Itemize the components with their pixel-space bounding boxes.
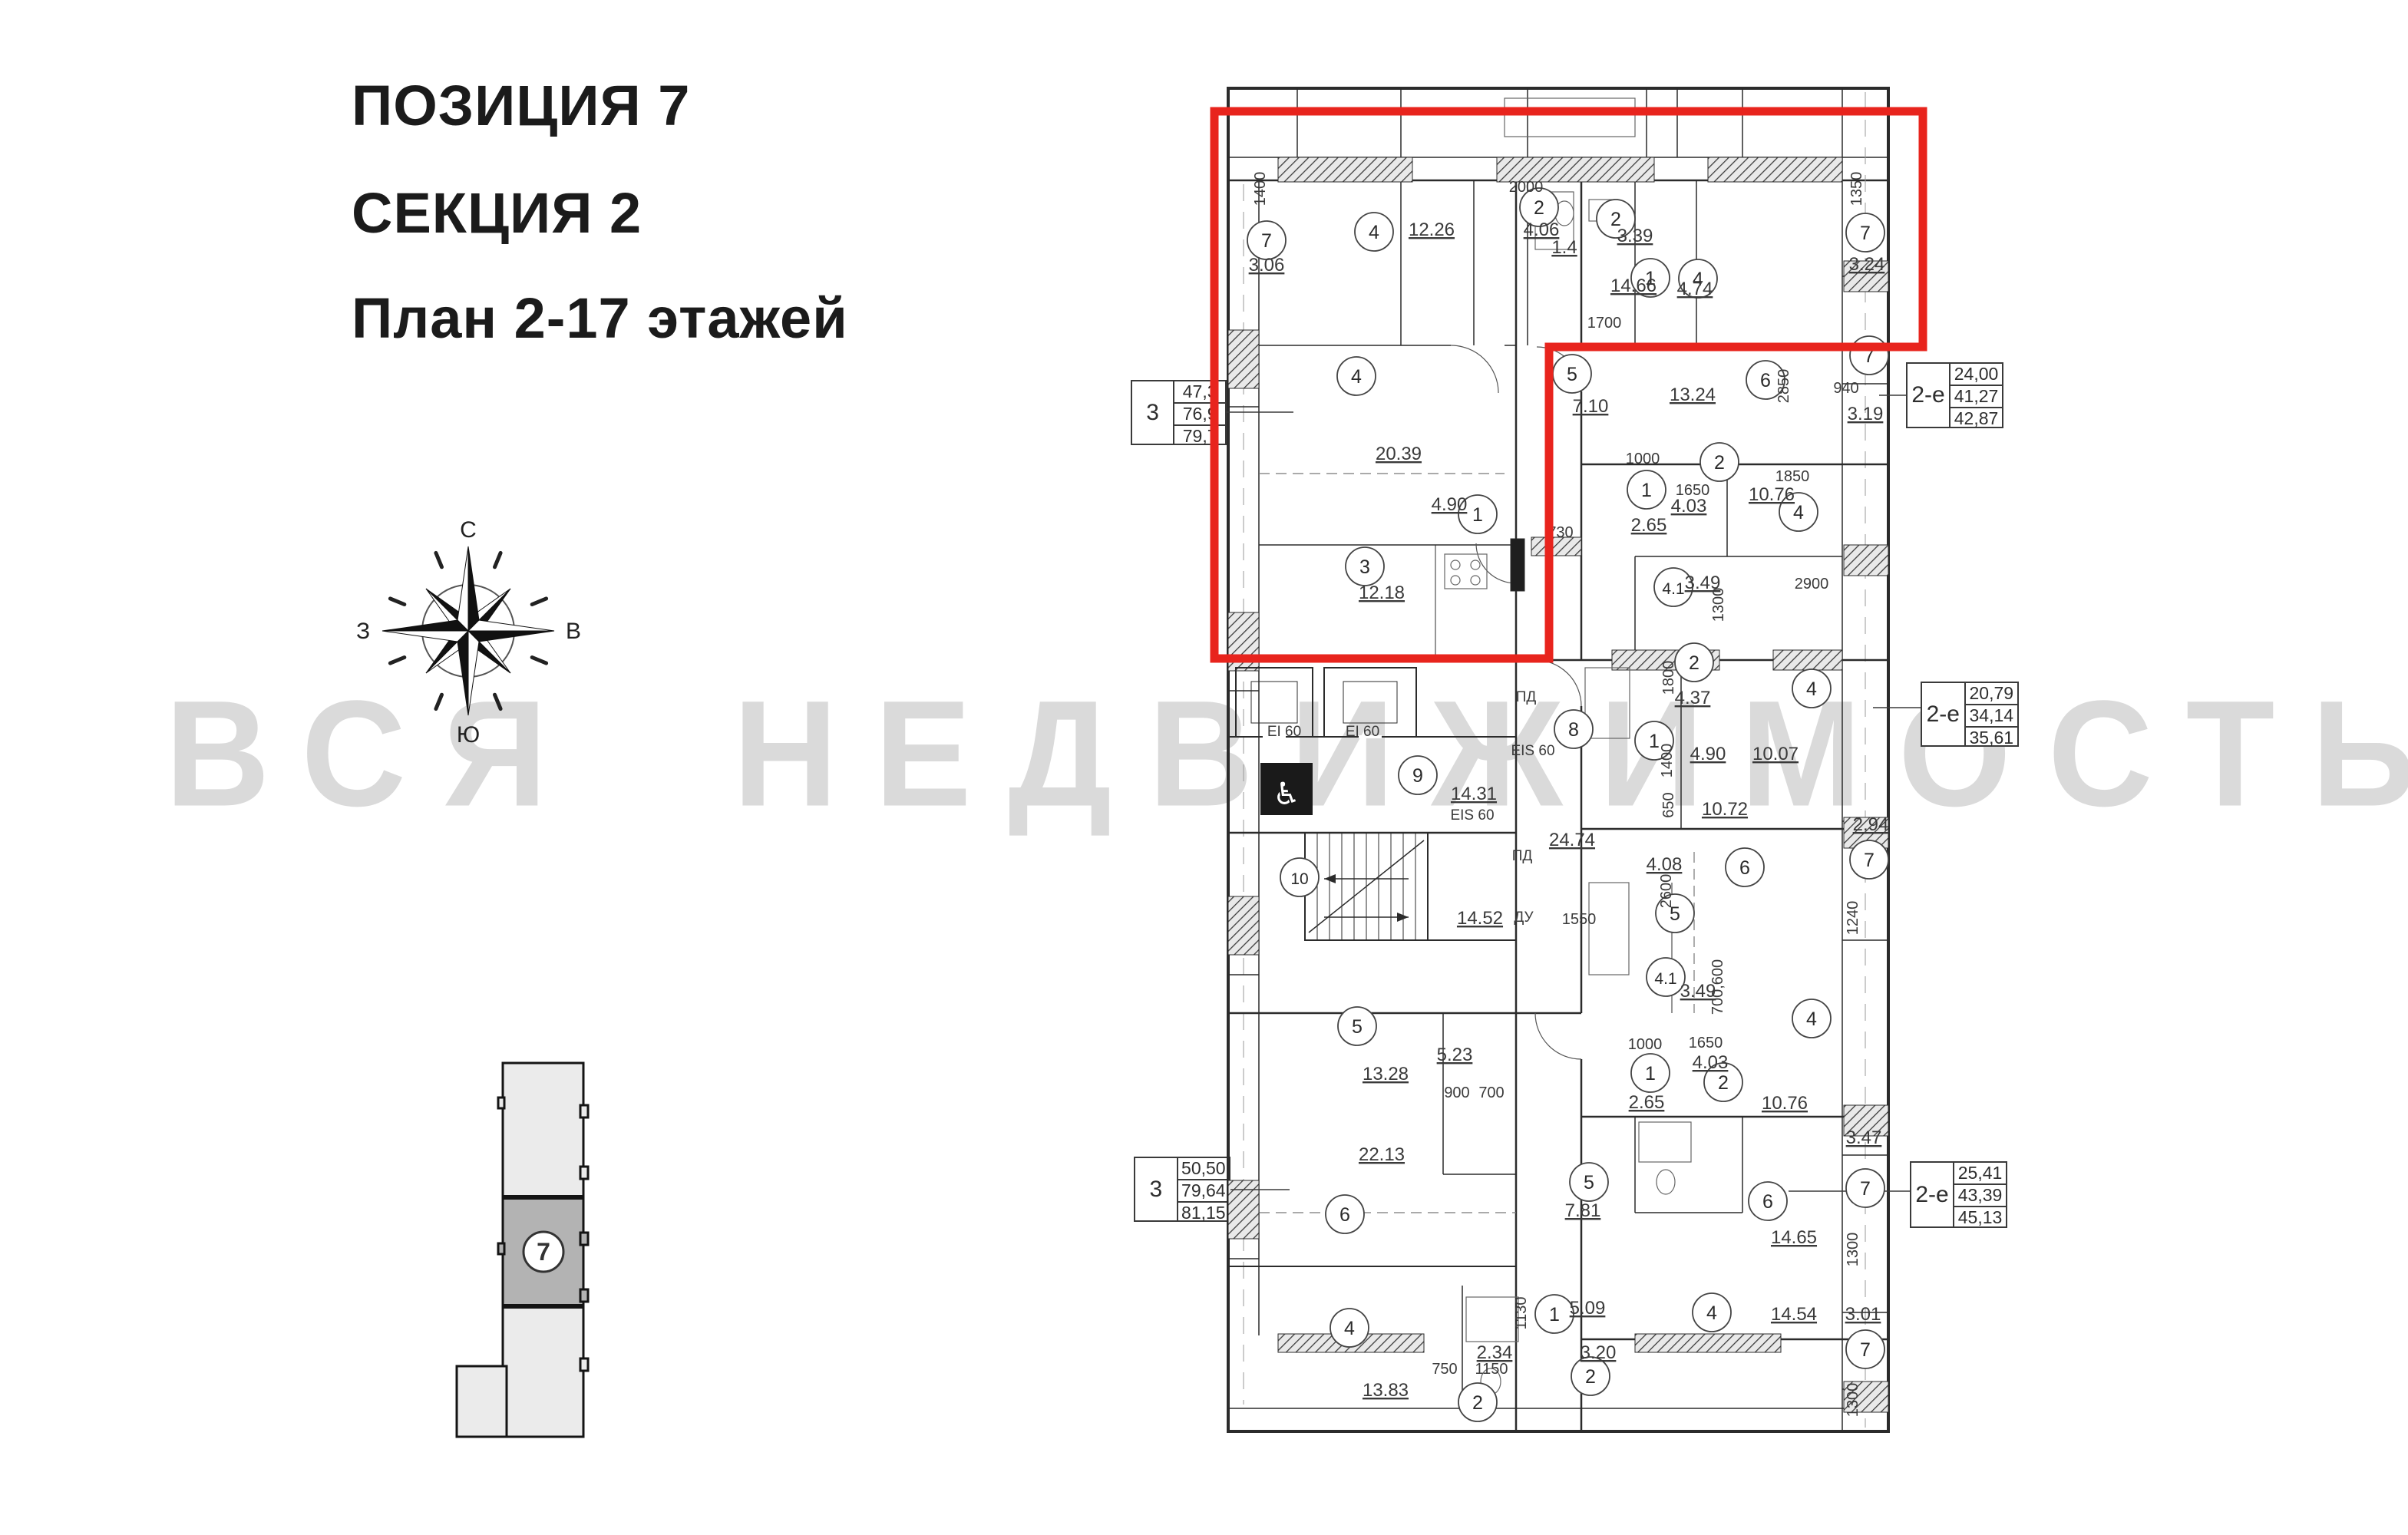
room-number: 7 [1860,1339,1871,1361]
area-value: 24,00 [1951,364,2002,386]
dimension-label: 1700 [1587,315,1622,332]
room-number: 7 [1261,230,1272,252]
area-label: 2.65 [1629,1092,1665,1113]
area-value: 34,14 [1966,705,2017,728]
room-number: 1 [1472,504,1483,526]
compass-east-label: В [566,619,581,644]
page-title-position: ПОЗИЦИЯ 7 [352,73,690,138]
room-number: 2 [1714,452,1725,474]
room-number: 6 [1762,1191,1773,1213]
room-number: 4 [1344,1318,1355,1339]
dimension-label: 700,600 [1709,959,1726,1015]
room-number: 4.1 [1662,580,1684,598]
room-number: 1 [1549,1304,1560,1325]
stairs [1305,833,1428,940]
area-label: 3.24 [1849,254,1885,275]
area-label: 12.26 [1409,220,1455,240]
room-number: 7 [1860,1178,1871,1200]
room-number: 1 [1641,480,1652,501]
room-number: 10 [1290,870,1308,888]
dimension-label: 900 [1444,1084,1469,1101]
dimension-label: 1550 [1562,911,1597,928]
area-label: 2.94 [1853,814,1889,835]
dimension-label: 940 [1833,380,1858,397]
apartment-type: 3 [1132,381,1174,444]
dimension-label: 1650 [1676,482,1710,499]
dimension-label: 1400 [1252,172,1269,206]
dimension-label: 1400 [1659,744,1676,778]
area-label: 14.54 [1771,1304,1817,1325]
area-label: 13.28 [1363,1064,1409,1084]
area-label: 10.76 [1749,484,1795,505]
plan-annotation: EI 60 [1267,724,1301,740]
room-number: 7 [1864,850,1875,871]
room-number: 6 [1760,370,1771,391]
area-value: 43,39 [1954,1185,2006,1207]
room-number: 1 [1649,731,1660,752]
room-number: 5 [1584,1172,1594,1193]
dimension-label: 1300 [1845,1383,1861,1418]
room-number: 5 [1352,1016,1363,1038]
dimension-label: 1240 [1845,901,1861,936]
dimension-label: 1850 [1775,468,1810,485]
area-label: 3.06 [1249,255,1285,276]
room-number: 1 [1645,1063,1656,1084]
area-label: 22.13 [1359,1144,1405,1165]
room-number: 7 [1860,223,1871,244]
plan-annotation: EIS 60 [1450,807,1494,824]
room-number: 4 [1806,1008,1817,1030]
room-number: 4 [1351,366,1362,388]
compass-south-label: Ю [457,722,480,746]
area-label: 3.47 [1846,1127,1882,1148]
dimension-label: 1150 [1475,1361,1508,1378]
area-value: 20,79 [1966,683,2017,705]
area-label: 14.31 [1451,784,1497,804]
elevators [1236,668,1416,737]
area-label: 7.10 [1573,396,1609,417]
room-number: 4.1 [1654,970,1676,988]
area-label: 4.37 [1675,688,1711,708]
plan-annotation: EIS 60 [1511,743,1554,759]
room-number: 4 [1793,502,1804,523]
dimension-label: 1130 [1513,1296,1530,1329]
compass-star [382,546,554,715]
dimension-label: 2850 [1775,369,1792,404]
dimension-label: 2000 [1509,179,1544,196]
dimension-label: 650 [1660,792,1677,817]
compass-rose: С Ю В З [353,516,583,746]
dimension-label: 1000 [1628,1036,1663,1053]
dimension-label: 1300 [1845,1233,1861,1267]
room-number: 4 [1369,222,1379,243]
area-label: 4.74 [1677,279,1713,299]
area-label: 3.01 [1845,1304,1881,1325]
area-label: 10.72 [1702,799,1748,820]
area-label: 24.74 [1549,830,1595,850]
dimension-label: 1300 [1710,588,1727,622]
area-label: 14.52 [1457,908,1503,929]
plan-annotation: ПД [1516,689,1537,705]
area-label: 12.18 [1359,583,1405,603]
compass-west-label: З [356,619,370,644]
room-number: 5 [1567,364,1577,385]
room-number: 8 [1568,719,1579,741]
room-number: 2 [1689,652,1699,674]
dimension-label: 1000 [1626,451,1660,467]
page-title-section: СЕКЦИЯ 2 [352,180,642,246]
apartment-type: 3 [1135,1158,1178,1220]
floor-plan-page: ПОЗИЦИЯ 7 СЕКЦИЯ 2 План 2-17 этажей ВСЯ … [0,0,2408,1535]
area-label: 3.39 [1617,226,1653,246]
compass-north-label: С [460,517,477,543]
area-value: 42,87 [1951,408,2002,429]
area-label: 10.07 [1752,744,1799,764]
minimap-building-wing [457,1366,507,1437]
apartment-table-2e-middle: 2-е 20,79 34,14 35,61 [1921,682,2019,747]
area-label: 3.20 [1581,1342,1617,1363]
area-label: 1.4 [1551,237,1577,258]
plan-annotation: ПД [1512,848,1533,864]
room-number: 2 [1534,197,1544,219]
dimension-label: 750 [1432,1361,1457,1378]
area-label: 14.65 [1771,1227,1817,1248]
room-number: 3 [1359,556,1370,578]
area-label: 13.83 [1363,1380,1409,1401]
dimension-label: 2600 [1658,874,1675,909]
dimension-label: 700 [1478,1084,1504,1101]
svg-text:♿: ♿ [1273,777,1300,812]
area-label: 4.08 [1647,854,1683,875]
area-label: 7.81 [1565,1200,1601,1221]
plan-annotation: EI 60 [1346,724,1379,740]
wheelchair-access-icon: ♿ [1260,763,1313,815]
area-label: 2.65 [1631,515,1667,536]
room-number: 2 [1585,1366,1596,1388]
area-label: 20.39 [1376,444,1422,464]
area-label: 13.24 [1670,385,1716,405]
area-value: 35,61 [1966,728,2017,748]
dimension-label: 1350 [1848,172,1865,206]
plan-annotation: ДУ [1514,909,1534,926]
area-label: 4.03 [1693,1052,1729,1073]
area-value: 45,13 [1954,1207,2006,1228]
area-label: 4.90 [1690,744,1726,764]
area-label: 5.23 [1437,1045,1473,1065]
dimension-label: 1800 [1660,661,1677,695]
dimension-label: 1650 [1689,1035,1723,1051]
room-number: 2 [1472,1392,1483,1414]
room-number: 6 [1739,857,1750,879]
minimap-section-number: 7 [537,1238,550,1266]
area-label: 4.03 [1671,496,1707,517]
area-label: 4.90 [1432,494,1468,515]
area-label: 14.66 [1610,276,1657,296]
room-number: 4 [1806,678,1817,700]
area-label: 5.09 [1570,1298,1606,1319]
page-title-floors: План 2-17 этажей [352,286,848,351]
building-minimap: 7 [445,1051,706,1458]
dimension-label: 2900 [1795,576,1829,593]
area-label: 2.34 [1477,1342,1513,1363]
room-number: 2 [1718,1072,1729,1094]
floor-plan-drawing: ♿ 74221474567121434.198241765105654.1412… [1205,84,1934,1435]
area-label: 10.76 [1762,1093,1808,1114]
area-label: 3.19 [1848,404,1884,424]
room-number: 4 [1706,1302,1717,1324]
area-value: 25,41 [1954,1163,2006,1185]
room-number: 6 [1339,1204,1350,1226]
area-value: 41,27 [1951,386,2002,408]
room-number: 9 [1412,765,1423,787]
